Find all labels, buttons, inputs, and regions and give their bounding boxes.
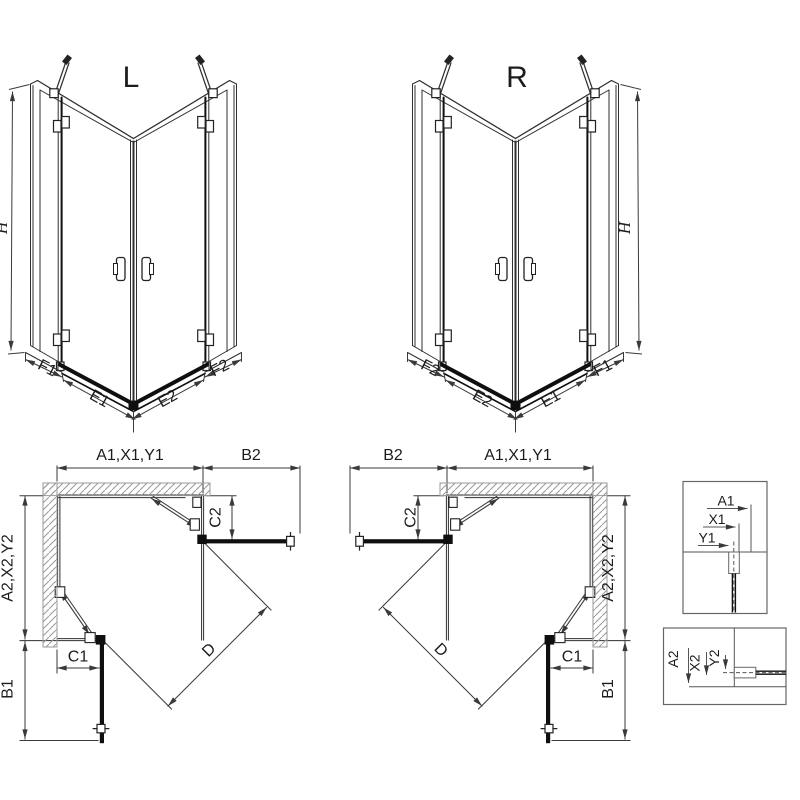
label-plan-l-c1: C1: [68, 649, 89, 666]
label-view-l-height: H: [0, 220, 11, 235]
label-plan-r-depth-side: A2,X2,Y2: [600, 534, 617, 602]
view-3d-right-linework: [408, 55, 624, 433]
label-plan-l-width-top: A1,X1,Y1: [96, 447, 164, 464]
label-view-r-title: R: [506, 61, 528, 94]
label-detail-x2: X2: [687, 654, 703, 671]
label-view-l-title: L: [123, 61, 140, 94]
h-dimension-left: [8, 85, 30, 355]
label-plan-r-c2: C2: [403, 507, 420, 528]
label-detail-y2: Y2: [706, 649, 722, 666]
plan-right-linework: [350, 466, 630, 743]
label-plan-l-b1: B1: [0, 679, 17, 699]
label-plan-r-b2: B2: [383, 447, 403, 464]
label-plan-l-b2: B2: [241, 447, 261, 464]
drawing-canvas: L H F1 E1 E2 F2 R H F2 E2 E1 F1 A1,X1,Y1…: [0, 0, 800, 800]
label-plan-r-c1: C1: [562, 649, 583, 666]
label-view-r-f1: F1: [591, 357, 615, 381]
label-detail-a2: A2: [665, 650, 681, 667]
label-detail-y1: Y1: [698, 530, 715, 546]
label-plan-r-b1: B1: [600, 679, 617, 699]
h-dimension-right: [621, 85, 643, 355]
label-detail-a1: A1: [717, 493, 734, 509]
label-plan-r-width-top: A1,X1,Y1: [484, 447, 552, 464]
plan-left-linework: [20, 466, 300, 743]
label-detail-x1: X1: [708, 511, 725, 527]
detail-box-bottom: [664, 628, 787, 705]
view-3d-left-linework: [26, 55, 242, 433]
label-view-r-height: H: [615, 220, 634, 235]
shower-enclosure-technical-drawing: L H F1 E1 E2 F2 R H F2 E2 E1 F1 A1,X1,Y1…: [0, 0, 800, 800]
label-plan-l-depth-side: A2,X2,Y2: [0, 534, 17, 602]
label-plan-l-c2: C2: [208, 507, 225, 528]
hatched-walls: [43, 483, 607, 647]
